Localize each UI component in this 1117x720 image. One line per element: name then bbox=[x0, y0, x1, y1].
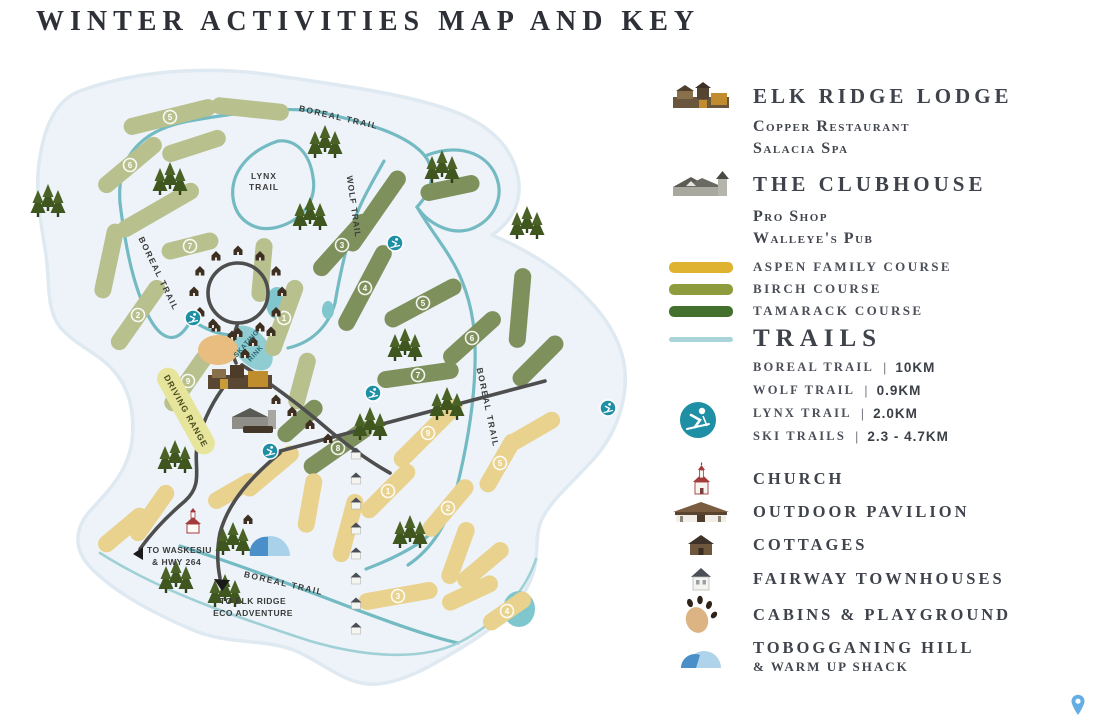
lynx-trail-name: LYNX TRAIL bbox=[753, 406, 852, 421]
legend-row-boreal: BOREAL TRAIL | 10KM bbox=[753, 356, 1098, 379]
clubhouse-icon bbox=[671, 169, 731, 199]
pavilion-icon bbox=[671, 500, 731, 524]
cabins-label: CABINS & PLAYGROUND bbox=[753, 605, 1098, 625]
aspen-course-swatch bbox=[669, 262, 733, 273]
legend-row-ski: SKI TRAILS | 2.3 - 4.7KM bbox=[753, 425, 1098, 448]
hole-number: 6 bbox=[128, 161, 133, 170]
legend-row-birch: BIRCH COURSE bbox=[648, 278, 1098, 300]
lodge-sub-spa: Salacia Spa bbox=[753, 138, 1098, 160]
hole-number: 2 bbox=[446, 504, 451, 513]
townhouses-label: FAIRWAY TOWNHOUSES bbox=[753, 569, 1098, 589]
map-key: ELK RIDGE LODGE Copper Restaurant Salaci… bbox=[648, 76, 1098, 679]
lynx-trail-label: LYNX bbox=[251, 171, 277, 181]
page-title: WINTER ACTIVITIES MAP AND KEY bbox=[36, 6, 700, 38]
aspen-course-label: ASPEN FAMILY COURSE bbox=[753, 259, 1098, 275]
lodge-icon bbox=[671, 81, 731, 111]
waskesiu-label: TO WASKESIU bbox=[147, 545, 212, 555]
toboggan-hill-icon bbox=[679, 642, 723, 670]
paw-icon bbox=[681, 595, 721, 635]
legend-row-tamarack: TAMARACK COURSE bbox=[648, 300, 1098, 322]
legend-row-church: CHURCH bbox=[648, 462, 1098, 495]
townhouse-icon bbox=[689, 565, 713, 593]
tamarack-course-swatch bbox=[669, 306, 733, 317]
ski-trail-marker bbox=[387, 235, 403, 251]
clubhouse-sub-proshop: Pro Shop bbox=[753, 206, 1098, 228]
legend-row-cottages: COTTAGES bbox=[648, 528, 1098, 561]
lynx-trail-distance: 2.0KM bbox=[873, 406, 918, 421]
hole-number: 4 bbox=[505, 607, 510, 616]
pavilion-building bbox=[243, 426, 273, 433]
toboggan-sublabel: & WARM UP SHACK bbox=[753, 659, 1098, 675]
hole-number: 1 bbox=[282, 314, 287, 323]
poi-legend: CHURCH OUTDOOR PAVILION bbox=[648, 462, 1098, 679]
winter-activities-poster: WINTER ACTIVITIES MAP AND KEY bbox=[0, 0, 1117, 720]
ski-trail-marker bbox=[600, 400, 616, 416]
birch-course-label: BIRCH COURSE bbox=[753, 281, 1098, 297]
hole-number: 2 bbox=[136, 311, 141, 320]
waskesiu-label2: & HWY 264 bbox=[152, 557, 201, 567]
eco-adventure-label2: ECO ADVENTURE bbox=[213, 608, 293, 618]
legend-row-lynx: LYNX TRAIL | 2.0KM bbox=[753, 402, 1098, 425]
birch-course-swatch bbox=[669, 284, 733, 295]
lodge-sub-restaurant: Copper Restaurant bbox=[753, 116, 1098, 138]
hole-number: 5 bbox=[168, 113, 173, 122]
ski-trails-name: SKI TRAILS bbox=[753, 429, 846, 444]
hole-number: 7 bbox=[188, 242, 193, 251]
trails-legend: TRAILS BOREAL TRAIL | 10KM WOLF TRAIL | … bbox=[648, 322, 1098, 448]
hole-number: 9 bbox=[186, 377, 191, 386]
map-pin-icon bbox=[1070, 694, 1086, 716]
resort-map-svg: 562719345678912345 DRIVING RANGE bbox=[0, 48, 690, 720]
pavilion-label: OUTDOOR PAVILION bbox=[753, 502, 1098, 522]
boreal-trail-distance: 10KM bbox=[895, 360, 935, 375]
clubhouse-heading: THE CLUBHOUSE bbox=[753, 172, 1098, 197]
ski-trails-distance: 2.3 - 4.7KM bbox=[867, 429, 949, 444]
tamarack-course-label: TAMARACK COURSE bbox=[753, 303, 1098, 319]
resort-map: 562719345678912345 DRIVING RANGE bbox=[0, 48, 690, 720]
hole-number: 5 bbox=[498, 459, 503, 468]
lynx-trail-label2: TRAIL bbox=[249, 182, 279, 192]
legend-row-pavilion: OUTDOOR PAVILION bbox=[648, 495, 1098, 528]
eco-adventure-label: TO ELK RIDGE bbox=[220, 596, 286, 606]
hole-number: 3 bbox=[340, 241, 345, 250]
hole-number: 9 bbox=[426, 429, 431, 438]
lodge-heading: ELK RIDGE LODGE bbox=[753, 84, 1098, 109]
legend-row-clubhouse: THE CLUBHOUSE bbox=[648, 162, 1098, 206]
course-legend: ASPEN FAMILY COURSE BIRCH COURSE TAMARAC… bbox=[648, 256, 1098, 322]
legend-row-wolf: WOLF TRAIL | 0.9KM bbox=[753, 379, 1098, 402]
church-icon bbox=[687, 462, 715, 496]
legend-row-trails: TRAILS bbox=[648, 322, 1098, 356]
skier-icon bbox=[676, 398, 720, 442]
hole-number: 5 bbox=[421, 299, 426, 308]
trails-heading: TRAILS bbox=[753, 325, 1098, 353]
wolf-trail-name: WOLF TRAIL bbox=[753, 383, 855, 398]
hole-number: 3 bbox=[396, 592, 401, 601]
ski-trail-marker bbox=[262, 443, 278, 459]
ski-trail-marker bbox=[365, 385, 381, 401]
hole-number: 8 bbox=[336, 444, 341, 453]
legend-row-townhouses: FAIRWAY TOWNHOUSES bbox=[648, 561, 1098, 596]
boreal-trail-name: BOREAL TRAIL bbox=[753, 360, 874, 375]
cottages-label: COTTAGES bbox=[753, 535, 1098, 555]
hole-number: 4 bbox=[363, 284, 368, 293]
cottage-icon bbox=[686, 533, 716, 557]
wolf-trail-distance: 0.9KM bbox=[877, 383, 922, 398]
hole-number: 1 bbox=[386, 487, 391, 496]
hole-number: 6 bbox=[470, 334, 475, 343]
church-label: CHURCH bbox=[753, 469, 1098, 489]
legend-row-toboggan: TOBOGGANING HILL & WARM UP SHACK bbox=[648, 633, 1098, 679]
toboggan-label: TOBOGGANING HILL bbox=[753, 638, 1098, 658]
cabins-playground-area bbox=[198, 335, 238, 365]
ski-trail-marker bbox=[185, 310, 201, 326]
hole-number: 7 bbox=[416, 371, 421, 380]
legend-row-cabins: CABINS & PLAYGROUND bbox=[648, 596, 1098, 633]
trail-line-swatch bbox=[669, 337, 733, 342]
legend-row-aspen: ASPEN FAMILY COURSE bbox=[648, 256, 1098, 278]
clubhouse-sub-pub: Walleye's Pub bbox=[753, 228, 1098, 250]
legend-row-lodge: ELK RIDGE LODGE bbox=[648, 76, 1098, 116]
